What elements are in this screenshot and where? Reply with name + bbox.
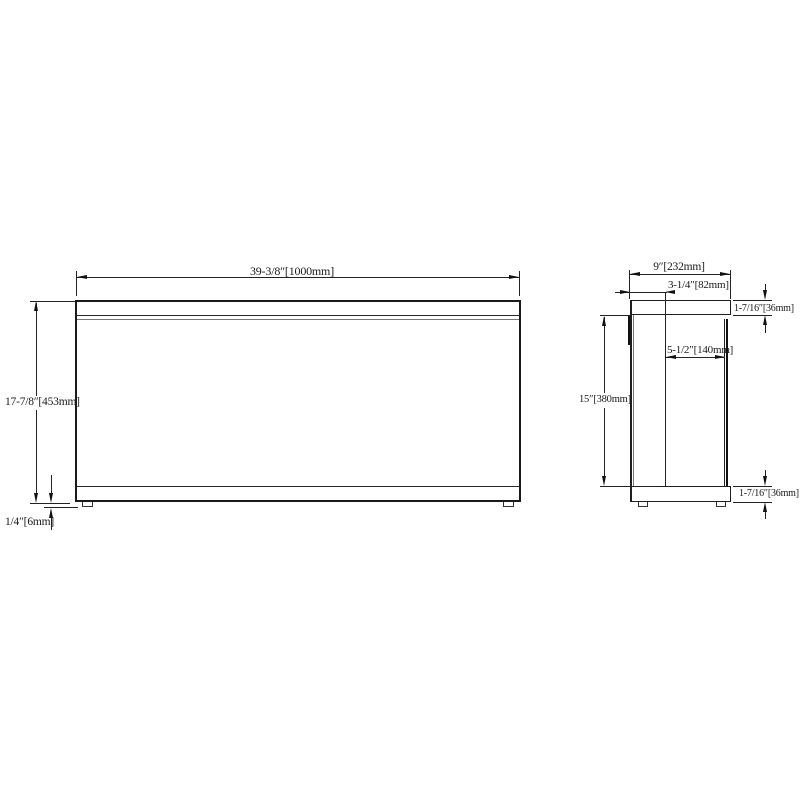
dim-bottom-thickness-tail-lower	[765, 512, 766, 519]
side-top-panel	[630, 300, 731, 315]
dim-top-thickness-tail-lower	[765, 325, 766, 333]
side-back-inner-line	[633, 315, 634, 486]
dim-top-thickness-ext-top	[733, 300, 772, 301]
dim-back-offset-arrow-left	[620, 290, 630, 294]
dim-front-width-arrow-left	[77, 275, 87, 279]
dim-bottom-thickness-label: 1-7/16″[36mm]	[739, 488, 799, 499]
dim-foot-height-label: 1/4″[6mm]	[5, 516, 54, 529]
dim-foot-height-line-upper	[51, 475, 52, 493]
dim-front-height-arrow-bottom	[34, 493, 38, 503]
dim-front-width-arrow-right	[509, 275, 519, 279]
front-top-rail-divider-line	[77, 315, 519, 316]
front-view-outline	[75, 300, 521, 502]
dim-side-depth-arrow-left	[630, 272, 640, 276]
dim-inner-height-arrow-top	[602, 316, 606, 326]
dim-front-height-arrow-top	[34, 301, 38, 311]
dim-front-height-ext-bottom	[30, 503, 70, 504]
dim-foot-height-arrow-down	[49, 493, 53, 503]
dim-inner-height-line-lower	[604, 408, 605, 476]
technical-drawing-canvas: 39-3/8″[1000mm] 17-7/8″[453mm] 1/4″[6mm]…	[0, 0, 800, 800]
dim-inner-height-line-upper	[604, 317, 605, 393]
dim-top-thickness-label: 1-7/16″[36mm]	[734, 303, 794, 314]
dim-inner-height-label: 15″[380mm]	[579, 394, 631, 406]
dim-top-thickness-arrow-down	[763, 290, 767, 300]
dim-front-height-line-upper	[36, 303, 37, 396]
dim-front-height-line-lower	[36, 410, 37, 493]
front-door-gap-line	[77, 319, 519, 320]
dim-side-depth-label: 9″[232mm]	[653, 261, 705, 274]
side-interior-divider-line	[665, 292, 666, 486]
dim-bottom-thickness-ext-top	[733, 486, 772, 487]
dim-front-width-ext-right	[519, 271, 520, 296]
dim-bottom-thickness-arrow-up	[763, 502, 767, 512]
front-left-foot	[82, 502, 93, 507]
side-bottom-panel	[630, 486, 731, 502]
front-right-foot	[503, 502, 514, 507]
dim-side-depth-line	[630, 274, 730, 275]
side-back-foot	[638, 502, 648, 507]
dim-front-width-label: 39-3/8″[1000mm]	[250, 265, 334, 278]
dim-top-thickness-arrow-up	[763, 315, 767, 325]
dim-back-offset-label: 3-1/4″[82mm]	[668, 279, 729, 291]
dim-side-depth-ext-right	[730, 270, 731, 299]
side-front-foot	[716, 502, 726, 507]
dim-lid-depth-label: 5-1/2″[140mm]	[667, 344, 733, 356]
dim-inner-height-arrow-bottom	[602, 476, 606, 486]
dim-bottom-thickness-arrow-down	[763, 476, 767, 486]
side-wall-bracket	[628, 316, 631, 345]
dim-side-depth-arrow-right	[720, 272, 730, 276]
dim-front-height-label: 17-7/8″[453mm]	[5, 396, 80, 409]
dim-inner-height-ext-bottom	[600, 486, 656, 487]
front-bottom-divider-line	[77, 486, 519, 487]
